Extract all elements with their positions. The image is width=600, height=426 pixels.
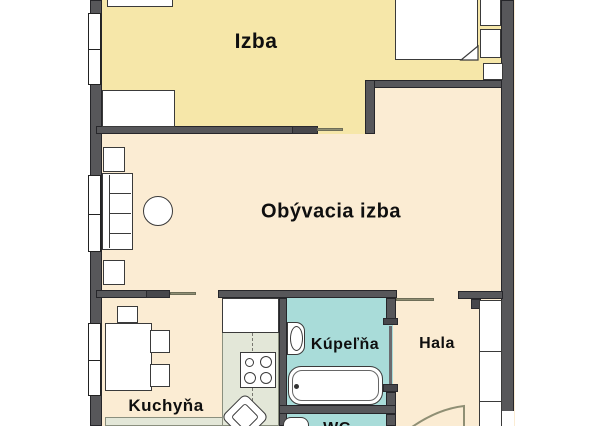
- entrance-door-arc: [412, 406, 464, 426]
- room-label-kuchyna: Kuchyňa: [128, 396, 203, 416]
- room-label-izba: Izba: [235, 30, 278, 54]
- room-label-hala: Hala: [419, 335, 455, 353]
- floorplan: Izba Obývacia izba Kuchyňa Kúpeľňa Hala …: [0, 0, 600, 426]
- bed-blanket-fold: [461, 46, 478, 60]
- room-label-obyvacia-izba: Obývacia izba: [261, 201, 401, 224]
- room-label-kupelna: Kúpeľňa: [311, 336, 379, 354]
- room-label-wc: WC: [323, 420, 351, 426]
